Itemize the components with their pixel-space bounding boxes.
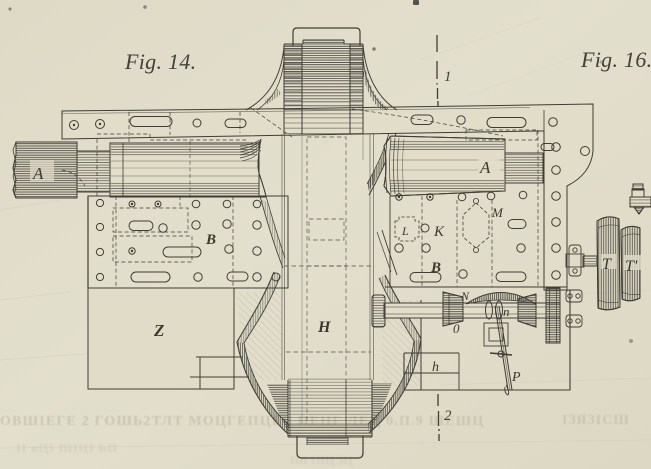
svg-text:L: L — [401, 224, 409, 238]
svg-text:2: 2 — [444, 408, 452, 424]
svg-text:B: B — [430, 260, 441, 276]
svg-text:A: A — [479, 158, 491, 177]
svg-text:ІЗЯЗІСШ: ІЗЯЗІСШ — [562, 413, 630, 428]
svg-text:n: n — [503, 304, 510, 319]
svg-text:H: H — [317, 319, 331, 336]
svg-text:1: 1 — [444, 69, 452, 85]
svg-text:0: 0 — [453, 321, 460, 336]
svg-text:M: M — [491, 205, 504, 220]
svg-text:T′: T′ — [625, 258, 638, 275]
svg-text:ОВШІЕГЕ 2 ГОШЬ2ТЛТ МОЦГЕПЦЕЕ П: ОВШІЕГЕ 2 ГОШЬ2ТЛТ МОЦГЕПЦЕЕ ПЕНГ ЛЕЦ 0.… — [0, 414, 484, 429]
svg-text:B: B — [205, 232, 216, 248]
svg-text:P: P — [511, 370, 521, 385]
svg-text:ІШ ПІЦ ЗЦ: ІШ ПІЦ ЗЦ — [290, 453, 354, 467]
svg-text:N: N — [460, 289, 470, 303]
svg-text:K: K — [433, 224, 445, 240]
svg-text:h: h — [432, 360, 439, 375]
svg-text:T: T — [602, 256, 612, 273]
svg-text:Fig. 16.: Fig. 16. — [580, 47, 651, 72]
svg-text:Fig. 14.: Fig. 14. — [124, 49, 196, 74]
svg-text:Z: Z — [153, 321, 164, 340]
svg-text:ІІ вЦІ ШІЦІ ЬП: ІІ вЦІ ШІЦІ ЬП — [16, 441, 118, 455]
svg-text:A: A — [32, 164, 44, 183]
